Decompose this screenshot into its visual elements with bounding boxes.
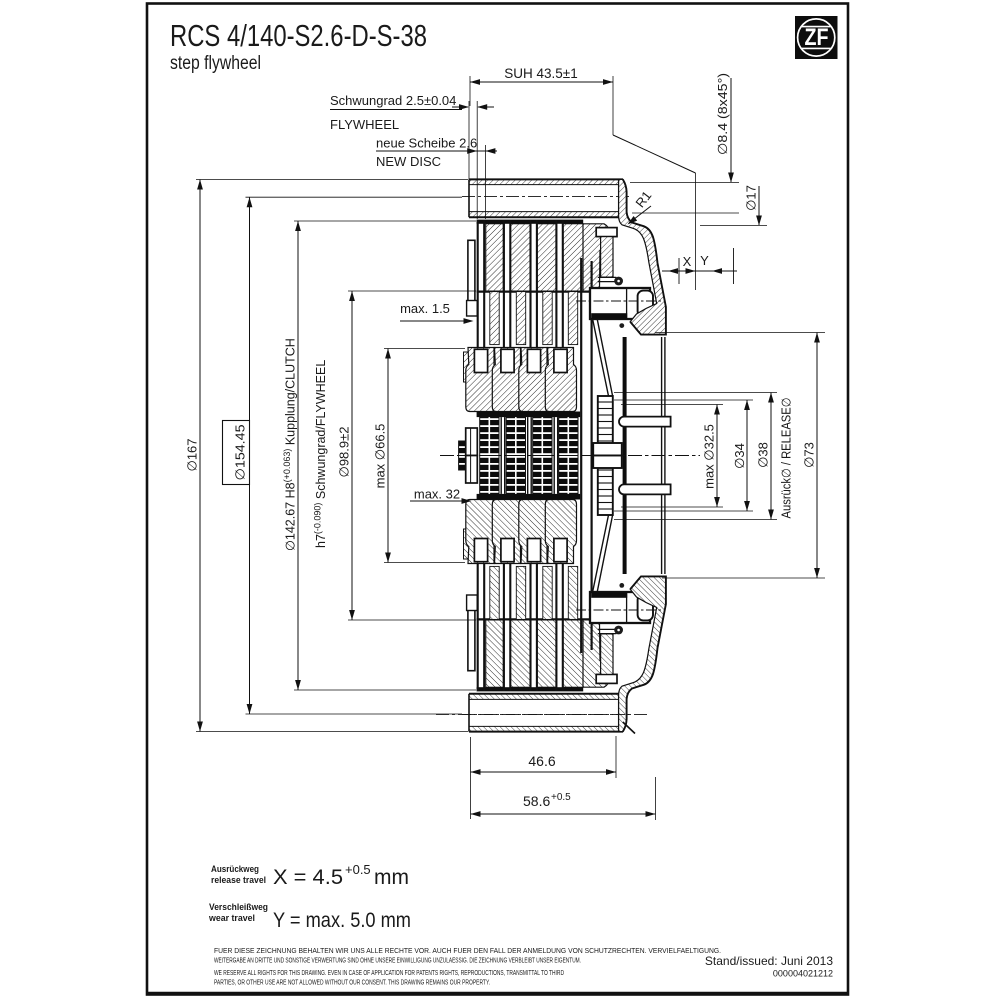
svg-text:+0.5: +0.5 xyxy=(345,862,371,877)
svg-text:WEITERGABE AN DRITTE UND SONST: WEITERGABE AN DRITTE UND SONSTIGE VERWER… xyxy=(214,958,581,965)
svg-text:46.6: 46.6 xyxy=(528,753,555,769)
svg-text:mm: mm xyxy=(374,866,409,889)
svg-text:max. 1.5: max. 1.5 xyxy=(400,301,450,316)
svg-text:∅8.4 (8x45°): ∅8.4 (8x45°) xyxy=(715,73,730,155)
svg-text:wear travel: wear travel xyxy=(208,913,255,924)
svg-text:∅154.45: ∅154.45 xyxy=(233,425,248,481)
svg-text:RCS 4/140-S2.6-D-S-38: RCS 4/140-S2.6-D-S-38 xyxy=(170,18,427,53)
svg-text:Verschleißweg: Verschleißweg xyxy=(209,902,268,913)
svg-text:∅38: ∅38 xyxy=(756,442,771,468)
svg-text:NEW DISC: NEW DISC xyxy=(376,154,441,169)
svg-text:max. 32: max. 32 xyxy=(414,487,460,502)
svg-text:58.6: 58.6 xyxy=(523,793,550,809)
svg-text:X: X xyxy=(683,254,692,269)
svg-text:release travel: release travel xyxy=(211,875,266,886)
svg-text:Ausrückweg: Ausrückweg xyxy=(211,864,259,875)
svg-text:PARTIES, OR OTHER USE ARE NOT: PARTIES, OR OTHER USE ARE NOT ALLOWED WI… xyxy=(214,980,490,987)
svg-text:Y = max. 5.0 mm: Y = max. 5.0 mm xyxy=(273,909,411,932)
svg-text:step flywheel: step flywheel xyxy=(170,53,261,74)
svg-text:Stand/issued: Juni 2013: Stand/issued: Juni 2013 xyxy=(705,954,833,968)
svg-text:max ∅32.5: max ∅32.5 xyxy=(702,424,717,489)
svg-text:ZF: ZF xyxy=(805,24,829,51)
svg-text:FUER DIESE ZEICHNUNG BEHALTEN: FUER DIESE ZEICHNUNG BEHALTEN WIR UNS AL… xyxy=(214,948,721,955)
svg-text:SUH 43.5±1: SUH 43.5±1 xyxy=(504,66,577,81)
svg-text:∅17: ∅17 xyxy=(744,185,759,211)
svg-text:∅98.9±2: ∅98.9±2 xyxy=(337,427,352,478)
svg-text:+0.5: +0.5 xyxy=(551,792,571,803)
svg-text:Ausrück∅ / RELEASE∅: Ausrück∅ / RELEASE∅ xyxy=(780,397,794,518)
svg-text:∅34: ∅34 xyxy=(732,443,747,469)
svg-text:neue Scheibe 2.6: neue Scheibe 2.6 xyxy=(376,136,477,151)
svg-text:Schwungrad 2.5±0.04: Schwungrad 2.5±0.04 xyxy=(330,93,456,108)
svg-text:Y: Y xyxy=(700,253,709,268)
svg-text:∅73: ∅73 xyxy=(802,442,817,468)
svg-text:000004021212: 000004021212 xyxy=(773,969,833,979)
svg-text:max ∅66.5: max ∅66.5 xyxy=(373,424,388,489)
svg-text:FLYWHEEL: FLYWHEEL xyxy=(330,117,399,132)
svg-text:WE RESERVE ALL RIGHTS FOR THIS: WE RESERVE ALL RIGHTS FOR THIS DRAWING. … xyxy=(214,970,564,977)
svg-text:∅167: ∅167 xyxy=(185,438,200,471)
svg-text:X = 4.5: X = 4.5 xyxy=(273,866,343,889)
svg-text:∅142.67 H8(+0.063) Kupplung/CL: ∅142.67 H8(+0.063) Kupplung/CLUTCH xyxy=(282,338,298,551)
